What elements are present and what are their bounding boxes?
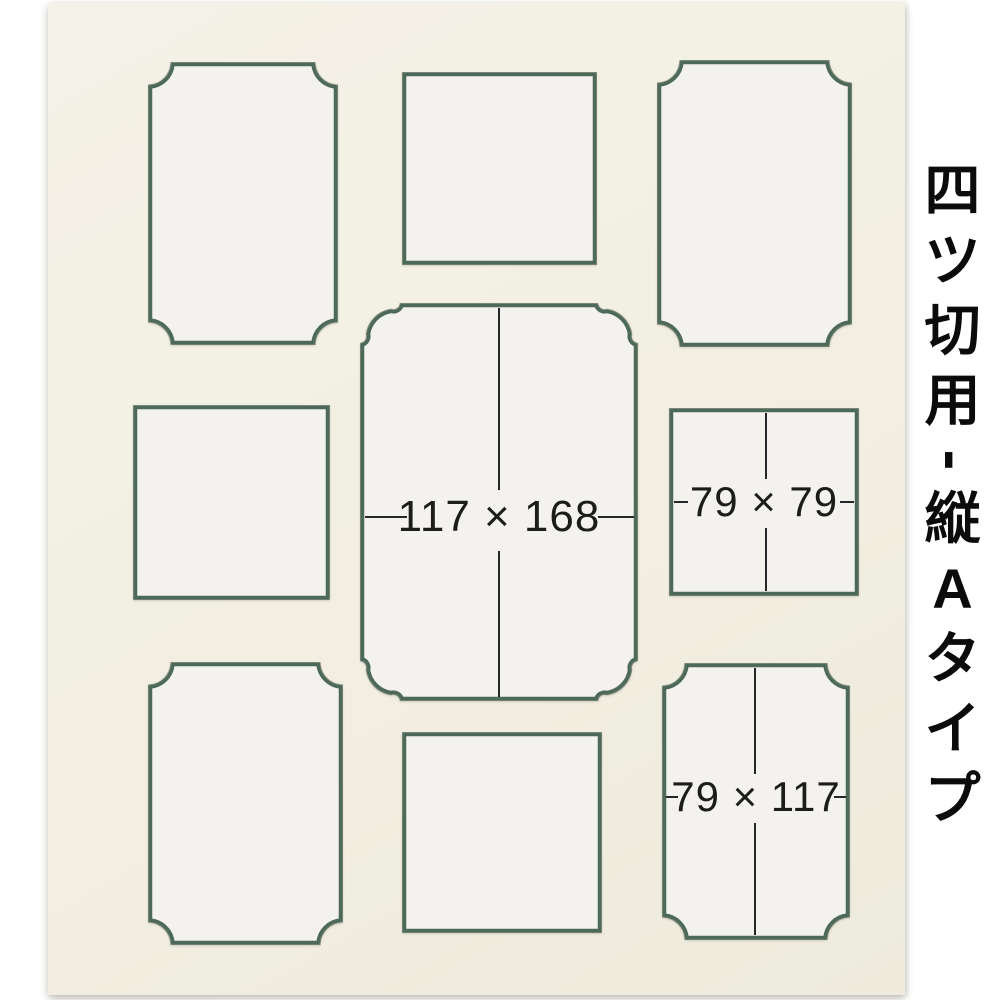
opening-cut-shape [148,662,343,945]
product-type-char: イ [925,701,981,757]
opening-middle-right: 79 × 79 [669,408,859,596]
opening-middle-left [133,405,330,600]
opening-top-right [657,60,852,347]
opening-cut-shape [402,72,597,265]
opening-bottom-right: 79 × 117 [662,663,850,940]
dimension-line-vertical-bottom [765,528,767,591]
dimension-line-vertical-top [765,413,767,479]
opening-top-center [402,72,597,265]
mat-board: 117 × 168 79 × 79 [48,3,905,995]
product-type-char: 切 [925,303,981,359]
product-type-char: プ [925,771,981,827]
opening-bottom-center [402,732,602,933]
opening-cut-shape [148,62,338,345]
opening-cut-shape [402,732,602,933]
product-type-char: A [932,561,972,617]
product-type-char: ツ [925,233,981,289]
product-photo: 117 × 168 79 × 79 [0,0,1000,1000]
product-type-char: 用 [925,373,981,429]
opening-cut-shape [657,60,852,347]
opening-bottom-left [148,662,343,945]
product-type-label: 四 ツ 切 用 - 縦 A タ イ プ [905,163,1000,827]
product-type-char: タ [925,631,981,687]
product-type-hyphen: - [936,450,970,471]
dimension-line-vertical-top [754,668,756,774]
dimension-line-vertical-bottom [498,551,500,697]
opening-center: 117 × 168 [360,303,638,701]
product-type-char: 縦 [925,491,981,547]
product-type-char: 四 [925,163,981,219]
size-label-center: 117 × 168 [360,495,638,539]
dimension-line-vertical-bottom [754,823,756,935]
dimension-line-vertical-top [498,308,500,490]
opening-top-left [148,62,338,345]
opening-cut-shape [133,405,330,600]
size-label-middle-right: 79 × 79 [669,481,859,523]
size-label-bottom-right: 79 × 117 [662,776,850,818]
